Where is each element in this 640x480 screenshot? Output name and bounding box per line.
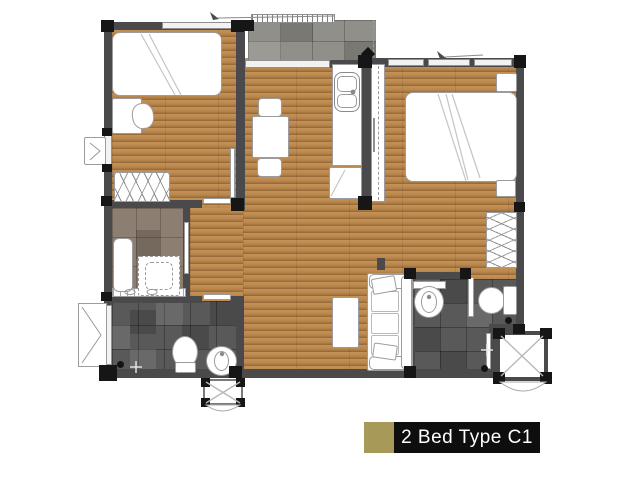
dining-chair xyxy=(258,98,282,117)
door-leaf xyxy=(203,294,231,300)
tile-patch xyxy=(210,301,237,325)
wall xyxy=(377,258,385,270)
tile-patch xyxy=(248,41,281,62)
wall-post xyxy=(513,324,525,334)
wall-post xyxy=(514,55,526,68)
wall-post xyxy=(493,372,505,384)
door-leaf xyxy=(468,277,474,317)
basin-bowl xyxy=(421,291,437,313)
floor-drain-icon xyxy=(117,361,124,368)
window xyxy=(428,59,470,66)
ac-unit-box xyxy=(84,137,106,165)
legend-color-swatch xyxy=(364,422,394,453)
sofa-back xyxy=(401,276,412,369)
wall-post xyxy=(493,328,505,339)
sliding-door xyxy=(184,222,189,274)
door-leaf xyxy=(486,333,491,369)
coffee-table xyxy=(332,297,359,348)
basin-bowl xyxy=(214,351,229,371)
wall xyxy=(407,272,467,279)
wall-post xyxy=(404,366,416,378)
cabinet-handle xyxy=(373,118,375,152)
toilet-tank xyxy=(503,286,517,315)
window xyxy=(245,60,330,68)
wall-post xyxy=(102,164,112,172)
tile-patch xyxy=(130,310,156,334)
wall xyxy=(516,58,524,334)
water-heater xyxy=(113,238,133,292)
floor-drain-icon xyxy=(505,317,512,324)
plan-type-text: 2 Bed Type C1 xyxy=(394,422,540,453)
door-leaf xyxy=(230,148,235,198)
nightstand xyxy=(496,73,517,92)
corridor-floor xyxy=(190,208,243,304)
single-bed xyxy=(112,32,222,96)
wall-post xyxy=(358,55,372,68)
wall xyxy=(105,296,202,303)
floor-drain-icon xyxy=(481,365,488,372)
wall-post xyxy=(236,378,245,387)
window xyxy=(388,59,424,66)
wall xyxy=(104,369,508,378)
wall xyxy=(362,58,371,208)
throw-pillow xyxy=(372,342,398,360)
toilet-tank xyxy=(175,362,196,373)
wall-post xyxy=(101,196,112,206)
wall-post xyxy=(229,366,242,378)
wall-post xyxy=(243,20,254,31)
wall-post xyxy=(358,196,372,210)
window xyxy=(162,22,234,29)
wall xyxy=(236,22,245,210)
wall-post xyxy=(99,365,117,381)
wall-post xyxy=(101,292,112,301)
tile-patch xyxy=(281,20,313,41)
wall-post xyxy=(231,198,244,211)
sink-basin xyxy=(337,94,357,108)
door-leaf xyxy=(203,198,231,204)
casement-window xyxy=(78,303,107,367)
tile-patch xyxy=(112,325,130,349)
wall-post xyxy=(540,372,552,384)
floorplan-canvas: 2 Bed Type C1 xyxy=(0,0,640,480)
dining-chair xyxy=(257,158,282,177)
wardrobe-master xyxy=(486,212,517,268)
tile-patch xyxy=(156,301,183,325)
sink-basin xyxy=(337,76,357,92)
shower-tray-inner xyxy=(145,262,173,290)
dining-table xyxy=(252,116,289,158)
wall-post xyxy=(101,20,114,32)
wall-post xyxy=(404,268,416,279)
double-bed xyxy=(405,92,517,182)
balcony-railing xyxy=(251,14,335,23)
door-swing-arc xyxy=(206,382,546,411)
kitchen-stool xyxy=(329,167,362,199)
wall xyxy=(236,296,244,374)
tile-patch xyxy=(414,327,440,351)
wall-post xyxy=(514,202,525,212)
wall-post xyxy=(540,328,552,339)
window xyxy=(474,59,512,66)
wall-post xyxy=(201,378,210,387)
wall-post xyxy=(102,128,112,136)
wall-post xyxy=(460,268,471,279)
sofa-cushion xyxy=(371,313,399,334)
cabinet-door-line xyxy=(378,66,379,200)
wall-post xyxy=(201,398,210,407)
plan-type-label: 2 Bed Type C1 xyxy=(364,422,540,453)
toilet xyxy=(478,287,505,314)
wall-post xyxy=(236,398,245,407)
nightstand xyxy=(496,180,516,197)
tile-patch xyxy=(136,230,160,259)
wardrobe-bedroom2 xyxy=(114,172,170,202)
